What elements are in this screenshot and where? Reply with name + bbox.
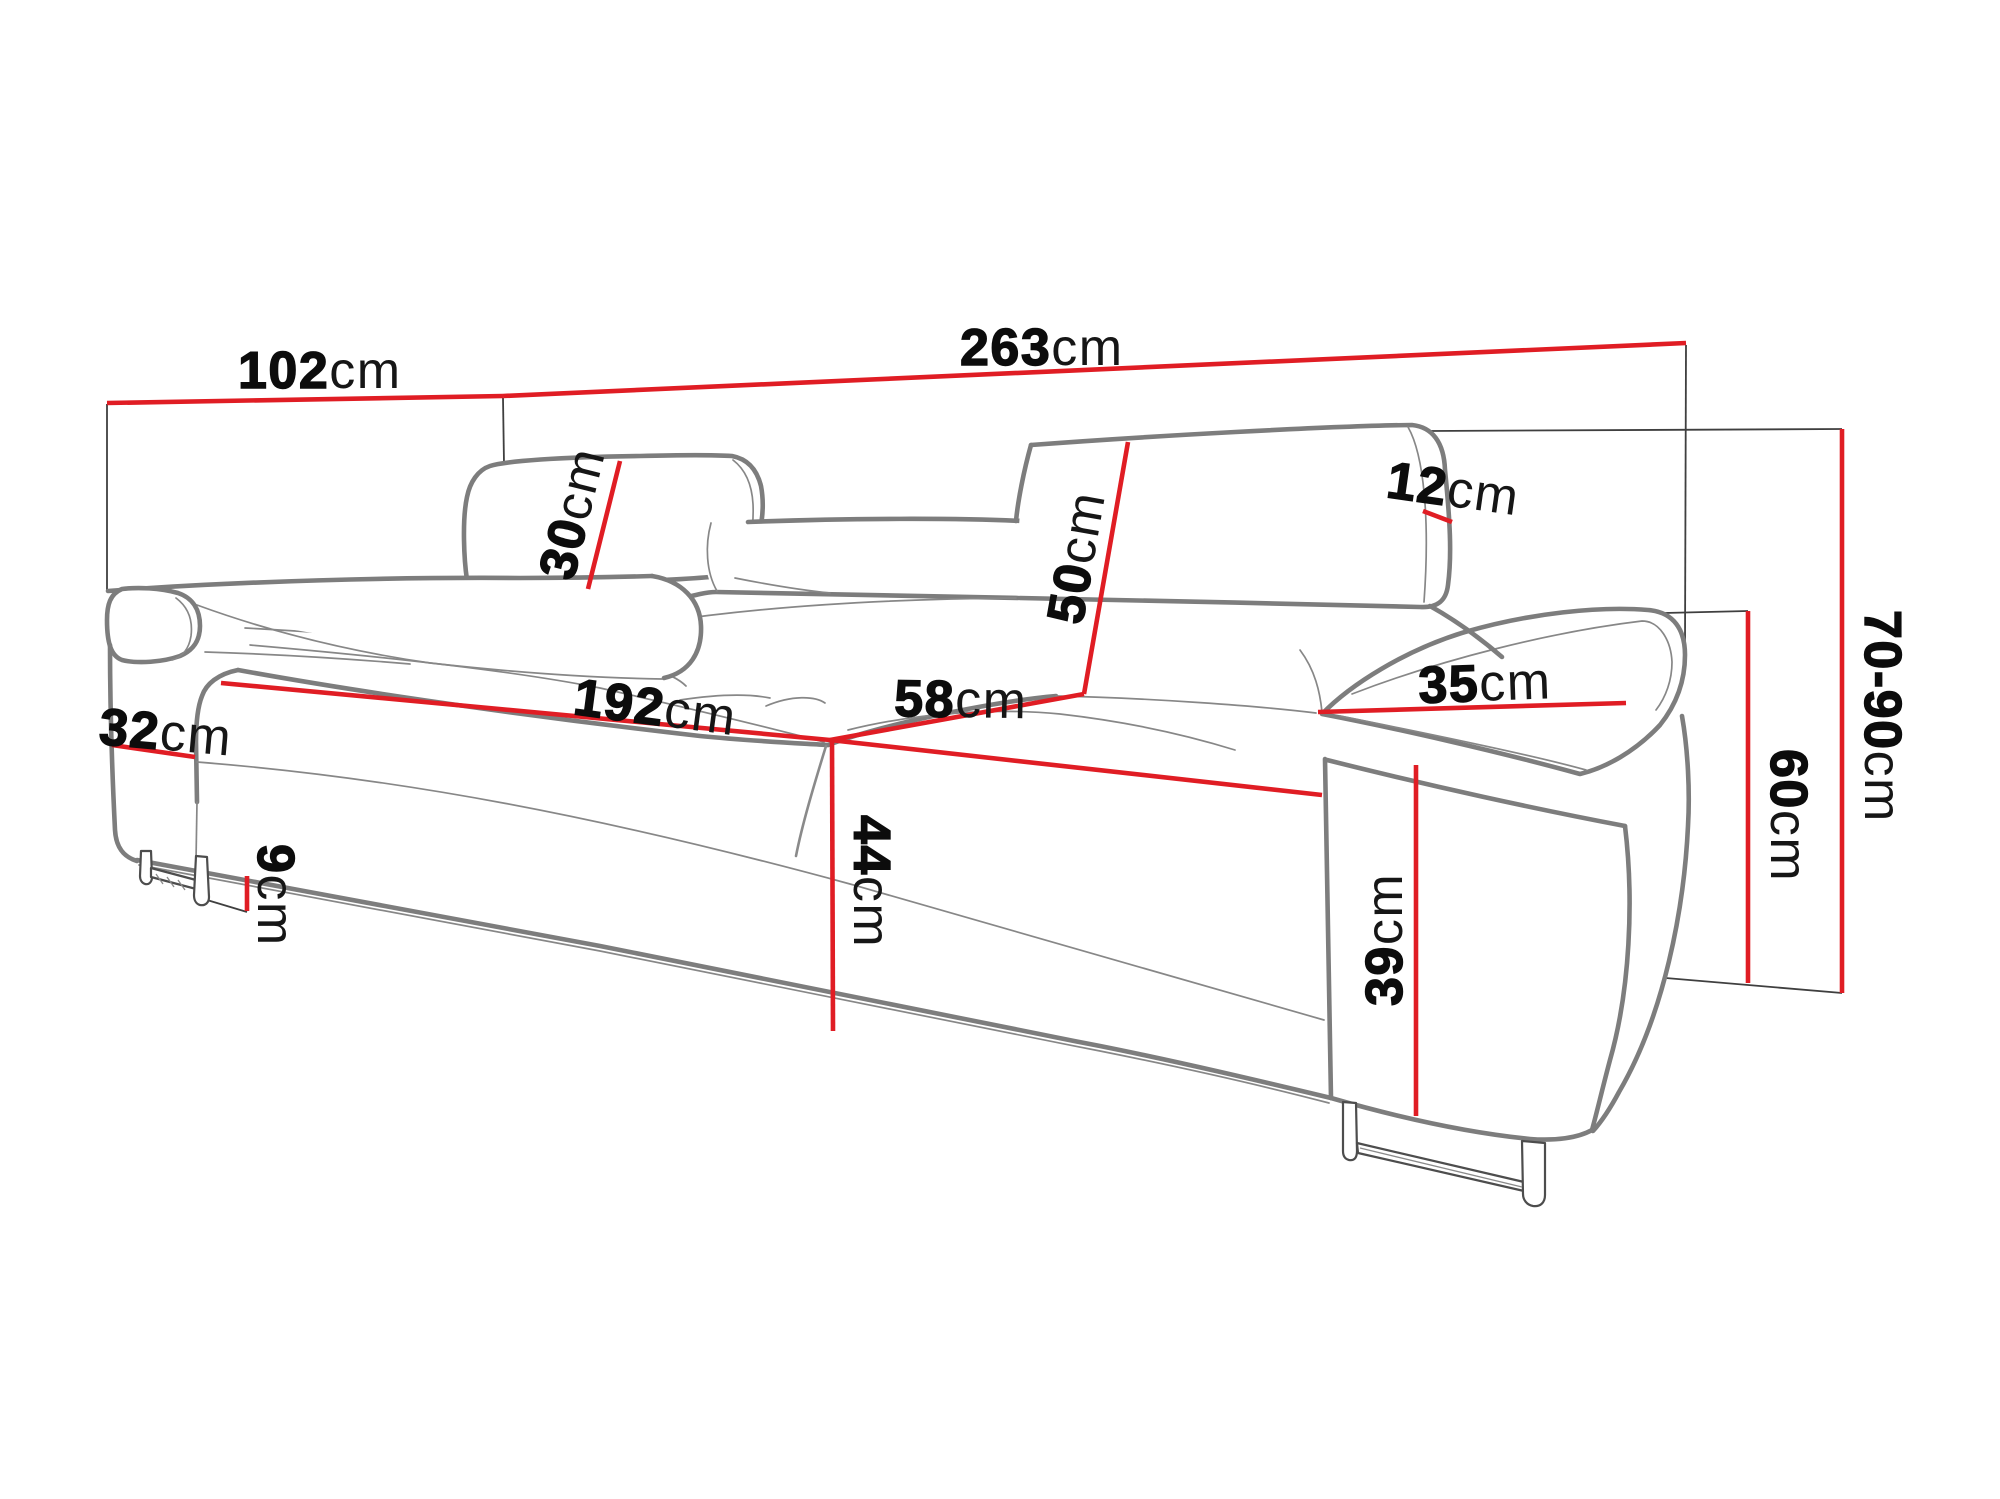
svg-text:263cm: 263cm (960, 319, 1124, 377)
svg-text:60cm: 60cm (1759, 749, 1817, 882)
svg-text:70-90cm: 70-90cm (1853, 610, 1911, 823)
svg-text:9cm: 9cm (246, 844, 304, 947)
svg-text:35cm: 35cm (1417, 652, 1552, 715)
svg-text:58cm: 58cm (894, 670, 1028, 730)
svg-text:102cm: 102cm (238, 342, 402, 400)
svg-text:44cm: 44cm (842, 815, 900, 948)
svg-text:39cm: 39cm (1356, 873, 1414, 1006)
svg-text:32cm: 32cm (97, 698, 235, 767)
